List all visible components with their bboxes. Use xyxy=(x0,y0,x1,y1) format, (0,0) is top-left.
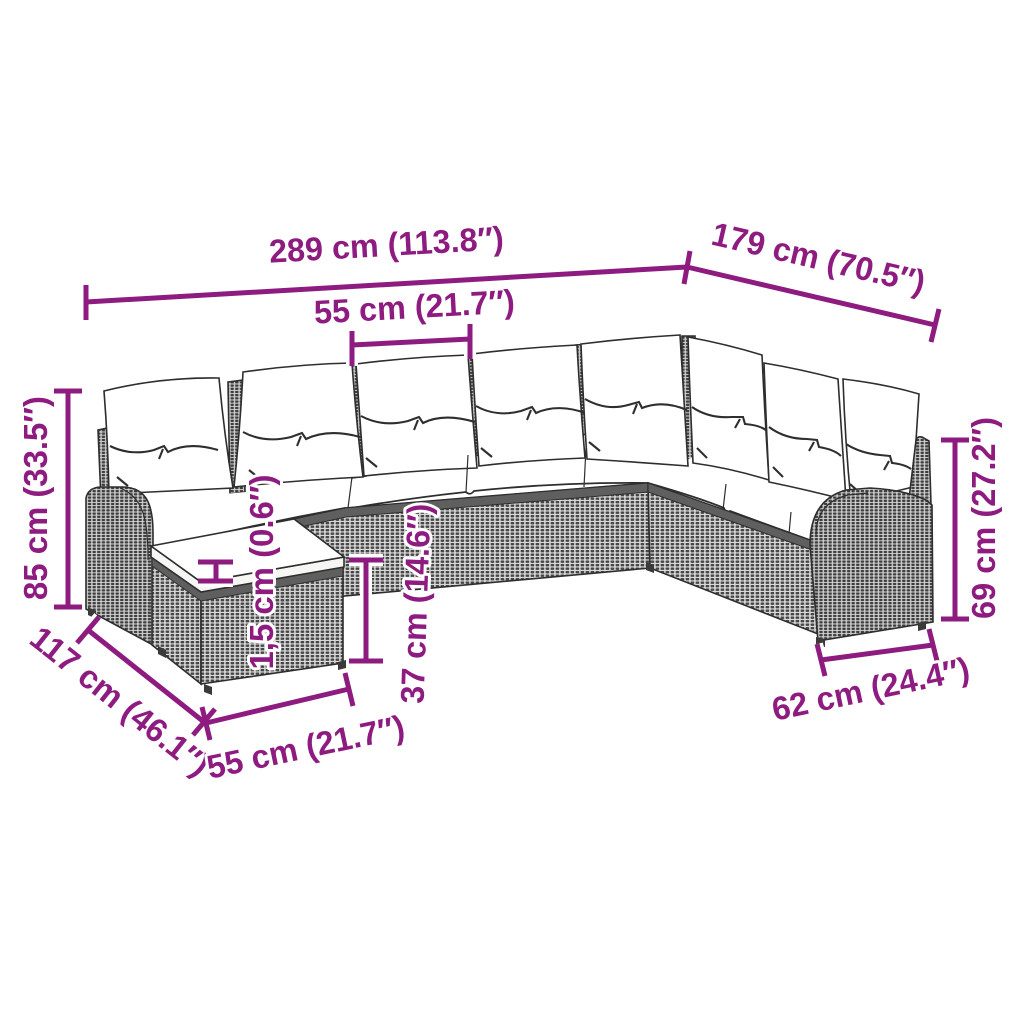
svg-text:69 cm (27.2″): 69 cm (27.2″) xyxy=(965,417,1002,619)
svg-text:37 cm (14.6″): 37 cm (14.6″) xyxy=(394,503,438,704)
svg-text:85 cm (33.5″): 85 cm (33.5″) xyxy=(17,396,54,600)
svg-text:1,5 cm (0.6″): 1,5 cm (0.6″) xyxy=(243,475,280,670)
